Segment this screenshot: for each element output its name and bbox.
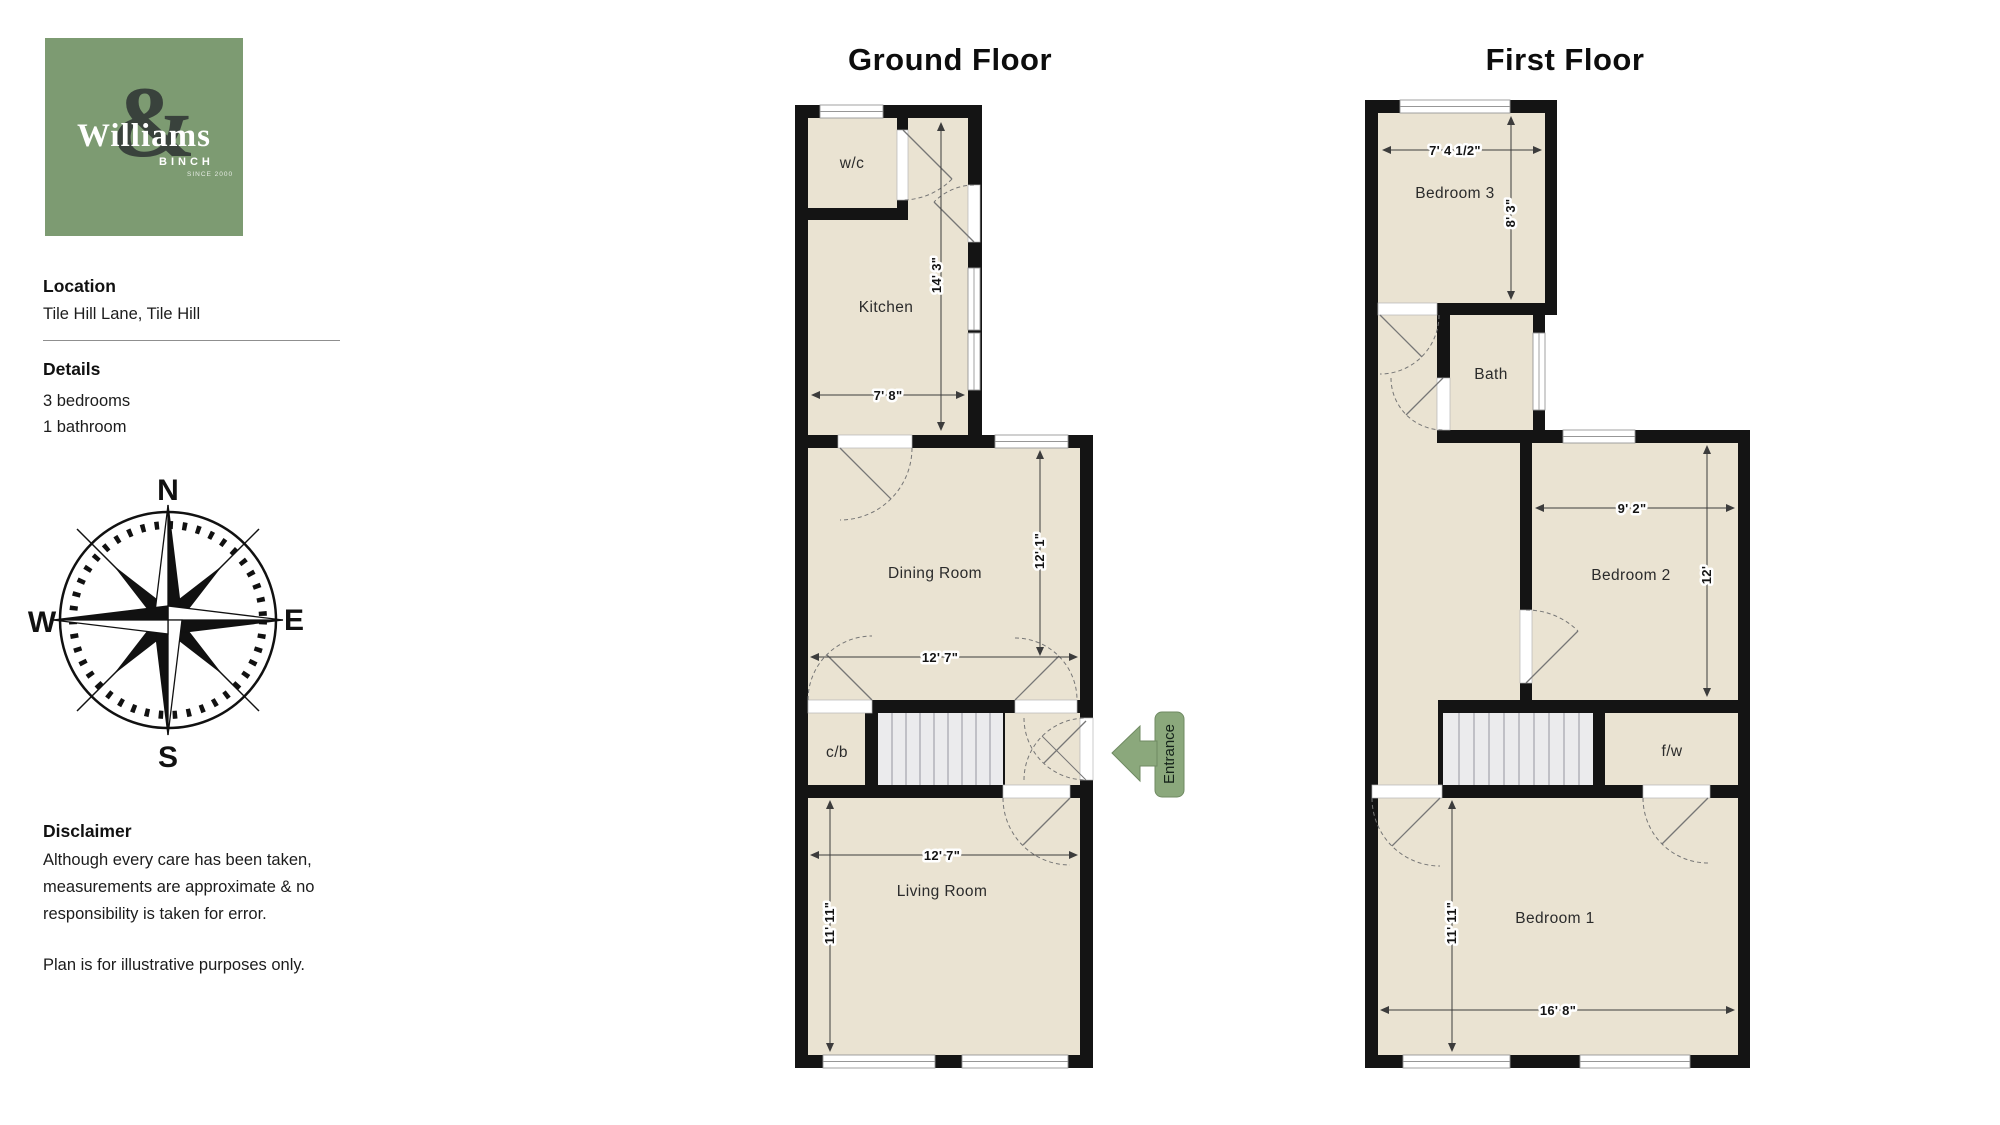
kitchen-height-dim: 14' 3" [929, 257, 944, 293]
dining-hall-door-right-opening [1015, 700, 1077, 713]
wc-window [820, 105, 883, 118]
bedroom2-window [1563, 430, 1635, 443]
living-window-right [962, 1055, 1068, 1068]
ground-stairs [878, 713, 1003, 785]
room-label-kitchen: Kitchen [859, 299, 914, 316]
disclaimer-note: Plan is for illustrative purposes only. [43, 952, 345, 979]
compass-west-label: W [28, 606, 57, 639]
bedroom2-width-dim: 9' 2" [1618, 501, 1647, 516]
dining-hall-door-left-opening [808, 700, 872, 713]
bedroom1-window-left [1403, 1055, 1510, 1068]
location-value: Tile Hill Lane, Tile Hill [43, 305, 200, 324]
disclaimer-text: Although every care has been taken, meas… [43, 847, 345, 928]
divider [43, 340, 340, 341]
front-door-opening [1080, 718, 1093, 780]
hall-floor [1003, 713, 1080, 785]
bedroom3-width-dim: 7' 4 1/2" [1429, 143, 1481, 158]
landing-upper-floor [1378, 303, 1437, 443]
bedroom2-door-opening [1520, 610, 1532, 683]
compass-south-label: S [158, 741, 178, 774]
compass-rose: N E S W [20, 462, 320, 792]
ground-floor-plan: 14' 3" 7' 8" 12' 1" 12' 7" 12' 7" 11' 11… [790, 85, 1220, 1085]
bedroom3-height-dim: 8' 3" [1503, 199, 1518, 228]
bedroom1-width-dim: 16' 8" [1540, 1003, 1576, 1018]
room-label-bedroom1: Bedroom 1 [1515, 910, 1594, 927]
living-window-left [823, 1055, 935, 1068]
dining-height-dim: 12' 1" [1032, 533, 1047, 569]
dining-width-dim: 12' 7" [922, 650, 958, 665]
living-height-dim: 11' 11" [822, 902, 837, 944]
details-heading: Details [43, 359, 100, 380]
entrance-label: Entrance [1161, 724, 1178, 784]
location-heading: Location [43, 276, 116, 297]
logo-since: SINCE 2000 [187, 171, 233, 178]
room-label-wc: w/c [839, 155, 864, 172]
landing-corridor-floor [1378, 443, 1438, 785]
kitchen-window-upper [968, 268, 980, 330]
bath-door-opening [1437, 378, 1450, 430]
room-label-bedroom3: Bedroom 3 [1415, 185, 1494, 202]
wc-door-opening [897, 130, 908, 200]
logo-subname: BINCH [159, 156, 214, 168]
room-label-dining: Dining Room [888, 565, 982, 582]
entrance-arrowhead [1112, 726, 1157, 781]
living-width-dim: 12' 7" [924, 848, 960, 863]
kitchen-window-lower [968, 333, 980, 390]
bedroom3-door-opening [1378, 303, 1437, 315]
bedroom1-door-right-opening [1643, 785, 1710, 798]
back-door-opening [968, 185, 980, 242]
bedroom1-window-right [1580, 1055, 1690, 1068]
room-label-fw: f/w [1661, 743, 1682, 760]
ground-floor-title: Ground Floor [720, 42, 1180, 78]
disclaimer-heading: Disclaimer [43, 821, 132, 842]
logo-name: Williams [45, 118, 243, 155]
bedroom1-height-dim: 11' 11" [1444, 902, 1459, 944]
room-label-bath: Bath [1474, 366, 1508, 383]
entrance-arrow: Entrance [1112, 712, 1184, 797]
room-label-bedroom2: Bedroom 2 [1591, 567, 1670, 584]
kitchen-width-dim: 7' 8" [874, 388, 903, 403]
room-label-living: Living Room [897, 883, 988, 900]
bath-window [1533, 333, 1545, 410]
room-label-cb: c/b [826, 744, 848, 761]
living-door-opening [1003, 785, 1070, 798]
bedroom3-window [1400, 100, 1510, 113]
hall-top-window [995, 435, 1068, 448]
bedroom1-door-left-opening [1372, 785, 1442, 798]
details-bathrooms: 1 bathroom [43, 418, 126, 437]
living-floor [808, 798, 1080, 1055]
bedroom3-floor [1378, 113, 1545, 303]
kitchen-dining-door-opening [838, 435, 912, 448]
details-bedrooms: 3 bedrooms [43, 392, 130, 411]
first-stairs [1443, 713, 1593, 785]
first-floor-plan: 7' 4 1/2" 8' 3" 9' 2" 12' 11' 11" 16' 8"… [1355, 85, 1785, 1085]
agency-logo: & Williams BINCH SINCE 2000 [45, 38, 243, 236]
first-floor-title: First Floor [1335, 42, 1795, 78]
ground-room-floors [808, 118, 1080, 1055]
compass-east-label: E [284, 604, 304, 637]
compass-north-label: N [157, 474, 179, 507]
bedroom2-height-dim: 12' [1699, 566, 1714, 584]
